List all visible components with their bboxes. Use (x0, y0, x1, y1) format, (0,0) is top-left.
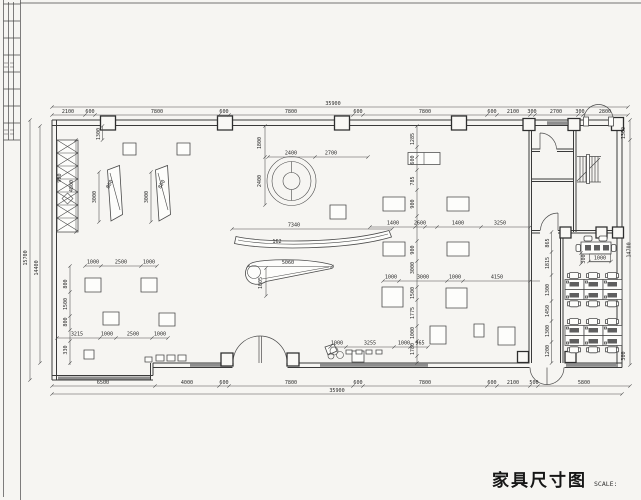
dimension-label: 1000 (331, 341, 343, 347)
dimension-label: 300 (575, 109, 584, 115)
dimension-label: 900 (410, 199, 416, 208)
workstation-cluster-1 (565, 273, 622, 307)
dimension-label: 1400 (452, 221, 464, 227)
dimension-label: 3250 (494, 221, 506, 227)
corridor-door (541, 213, 559, 231)
sheet-frame (4, 0, 641, 500)
workstation-column (584, 319, 603, 353)
dimension-label: 162 (272, 239, 281, 245)
dimension-label: 1775 (410, 307, 416, 319)
dimension-label: 7800 (151, 109, 163, 115)
dimension-label: 2500 (115, 260, 127, 266)
dimension-label: 7340 (288, 223, 300, 229)
dimension-label: 1005 (258, 277, 264, 289)
dimension-label: 500 (529, 380, 538, 386)
main-double-door (233, 336, 287, 363)
dimension-label: 300 (621, 351, 627, 360)
dimension-label: 600 (353, 109, 362, 115)
dimension-label: 1450 (545, 305, 551, 317)
dimension-label: 3000 (417, 275, 429, 281)
dimension-label: 1500 (63, 298, 69, 310)
dimension-label: 600 (353, 380, 362, 386)
dimension-label: 900 (57, 173, 63, 182)
dimension-label: 800 (63, 279, 69, 288)
dimension-label: 300 (581, 254, 587, 263)
dimension-label: 600 (85, 109, 94, 115)
dimension-label: 800 (63, 317, 69, 326)
dimension-label: 900 (410, 245, 416, 254)
workstation-cluster-2 (565, 319, 622, 353)
dimension-line (38, 124, 41, 364)
dimension-label: 1000 (101, 332, 113, 338)
dimension-label: 1300 (545, 325, 551, 337)
dimension-label: 1000 (594, 255, 606, 261)
dimension-label: 600 (487, 109, 496, 115)
dimension-label: 1000 (87, 260, 99, 266)
dimension-label: 14400 (34, 260, 40, 275)
circular-display (267, 157, 316, 206)
dimension-label: 7800 (419, 380, 431, 386)
dimension-label: 785 (410, 176, 416, 185)
workstation-column (603, 319, 622, 353)
dimension-label: 35900 (329, 388, 344, 394)
dimension-line (28, 118, 31, 381)
adjacent-sheet-fragment (4, 2, 21, 140)
dimension-label: 2100 (62, 109, 74, 115)
dimension-label: 4800 (69, 180, 75, 192)
dimension-label: 6500 (97, 380, 109, 386)
dimension-label: 2400 (285, 151, 297, 157)
staircase (577, 155, 601, 184)
dimension-label: 35900 (325, 101, 340, 107)
dimension-label: 300 (527, 109, 536, 115)
display-tables (84, 143, 515, 362)
dimension-label: 1300 (96, 128, 102, 140)
dimension-label: 1000 (410, 327, 416, 339)
dimension-label: 3000 (410, 262, 416, 274)
dimension-label: 2600 (414, 221, 426, 227)
dimension-label: 1500 (410, 287, 416, 299)
dimension-label: 600 (410, 155, 416, 164)
title-block: 家具尺寸图SCALE: 1:110 (492, 466, 638, 500)
workstation-column (584, 273, 603, 307)
floor-plan: 3590021006007800600780060078006002100300… (0, 0, 641, 500)
dimension-label: 1285 (410, 133, 416, 145)
workstation-column (603, 273, 622, 307)
dimension-label: 2100 (507, 380, 519, 386)
dimension-label: 3255 (364, 341, 376, 347)
dimension-label: 1400 (387, 221, 399, 227)
dimension-label: 600 (219, 380, 228, 386)
dimension-label: 600 (487, 380, 496, 386)
dimension-label: 1000 (143, 260, 155, 266)
stair-room-door (540, 133, 557, 150)
dimension-label: 3215 (71, 332, 83, 338)
dimension-label: 330 (63, 345, 69, 354)
workstation-column (565, 273, 584, 307)
dimension-label: 2800 (599, 109, 611, 115)
dimension-label: 2500 (127, 332, 139, 338)
dimension-label: 7800 (285, 380, 297, 386)
dimension-label: 600 (219, 109, 228, 115)
dimension-label: 4150 (491, 275, 503, 281)
reception-counter (235, 231, 392, 248)
dimension-label: 7800 (419, 109, 431, 115)
dimension-label: 2100 (507, 109, 519, 115)
dimension-label: 2700 (550, 109, 562, 115)
dimension-label: 1300 (621, 127, 627, 139)
dimension-label: 1000 (154, 332, 166, 338)
display-counters (108, 166, 171, 222)
dimension-label: 2700 (325, 151, 337, 157)
dimension-label: 4000 (181, 380, 193, 386)
dimension-label: 3000 (92, 191, 98, 203)
drawing-title: 家具尺寸图 (492, 471, 587, 491)
dimension-label: 2400 (257, 175, 263, 187)
dimension-label: 1300 (545, 284, 551, 296)
dimension-label: 1000 (449, 275, 461, 281)
cad-sheet: 3590021006007800600780060078006002100300… (0, 0, 641, 500)
dimension-label: 1200 (545, 345, 551, 357)
dimension-label: 5800 (578, 380, 590, 386)
dimension-label: 15700 (23, 250, 29, 265)
dimension-label: 5060 (282, 260, 294, 266)
dimension-label: 965 (415, 341, 424, 347)
dimension-line (263, 124, 266, 206)
dimension-label: 7800 (285, 109, 297, 115)
dimension-label: 865 (545, 238, 551, 247)
dimension-label: 1000 (385, 275, 397, 281)
dimension-label: 1800 (257, 137, 263, 149)
dimension-label: 1000 (398, 341, 410, 347)
dimension-label: 14700 (627, 242, 633, 257)
dimension-label: 1815 (545, 257, 551, 269)
dimension-line (550, 230, 553, 364)
dimension-label: 3000 (144, 191, 150, 203)
workstation-column (565, 319, 584, 353)
